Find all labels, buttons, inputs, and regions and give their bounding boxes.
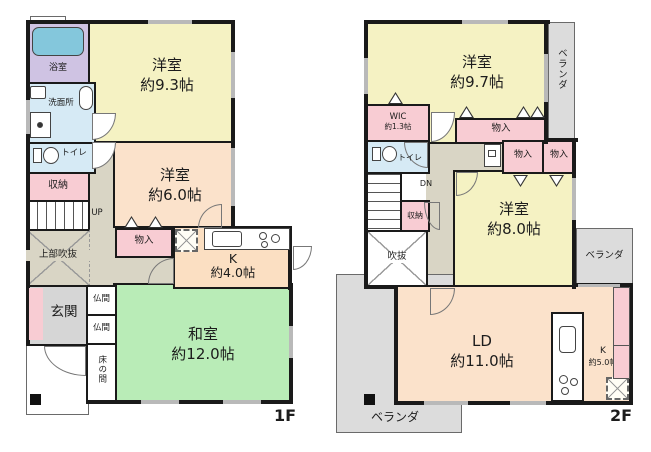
room-bath-label: 浴室 [30,63,86,73]
room-western-6-0-label: 洋室 約6.0帖 [116,166,234,205]
window [223,400,261,404]
room-toilet-1f-label: トイレ [54,149,94,159]
window [148,20,192,24]
wall-segment [394,285,398,405]
stove-burner-icon [259,232,267,240]
floorplan-image: 洋室 約9.3帖 洋室 約6.0帖 浴室 洗面所 トイレ 収納 UP [0,0,651,452]
window [364,58,368,94]
window [141,400,179,404]
stairs-down [366,172,402,232]
door-arc [293,246,312,270]
room-entrance-label: 玄関 [40,305,88,321]
bathtub-icon [32,27,84,56]
stove-burner-icon [271,234,280,243]
stairs-up-label: UP [86,209,108,219]
toilet-bowl-icon [43,147,59,164]
open-to-above-label: 上部吹抜 [26,250,90,261]
closet-1f-label: 物入 [117,236,171,247]
wall-segment [364,20,550,24]
hall-sink-basin [488,150,496,157]
room-toilet-2f-label: トイレ [392,153,428,162]
wall-segment [86,400,293,404]
wall-segment [364,285,397,289]
toilet-tank-icon [372,147,381,161]
stairs-down-label: DN [416,179,436,188]
floor-label-1f: 1F [274,406,296,425]
veranda-top-label: ベランダ [555,48,566,90]
kitchen-sink-icon [559,326,576,353]
refrigerator-space [606,377,629,400]
room-japanese-label: 和室 約12.0帖 [123,325,283,364]
window [289,326,293,358]
window [462,20,508,24]
room-storage-2f-label: 収納 [400,211,430,220]
stove-burner-icon [561,387,569,395]
stove-burner-icon [559,375,568,384]
window [510,401,546,405]
veranda-bottom-label: ベランダ [350,411,440,425]
wall-segment [26,20,235,24]
room-western-9-3-label: 洋室 約9.3帖 [102,56,232,95]
closet-a-label: 物入 [504,150,542,160]
toilet-bowl-icon [382,146,397,162]
room-wic-label: WIC 約1.3帖 [368,112,428,131]
room-altar-1-label: 仏間 [87,295,116,305]
refrigerator-space [175,229,198,252]
sink-icon [30,86,46,99]
porch-pillar [30,394,41,405]
room-western-8-0-label: 洋室 約8.0帖 [454,200,574,239]
room-altar-2-label: 仏間 [87,324,116,334]
washing-machine-drum [37,122,43,128]
vanity-icon [79,86,93,110]
stairs-up [26,200,90,231]
kitchen-counter-wall [613,287,630,379]
veranda-pillar [364,394,375,405]
stove-burner-icon [570,378,578,386]
void-atrium-label: 吹抜 [372,252,422,263]
window [424,401,468,405]
closet-97-label: 物入 [473,124,529,135]
room-living-dining-label: LD 約11.0帖 [402,332,562,371]
room-kitchen-1f-label: K 約4.0帖 [193,252,273,281]
room-alcove-label: 床の間 [96,355,106,384]
entrance-step [29,288,43,340]
stove-burner-icon [261,241,268,248]
veranda-mid-label: ベランダ [577,251,632,262]
room-western-9-7-label: 洋室 約9.7帖 [407,53,547,92]
toilet-tank-icon [33,148,42,163]
room-storage-1f-label: 収納 [28,180,88,192]
floor-label-2f: 2F [610,406,632,425]
kitchen-sink-icon [212,231,242,247]
kitchen-counter-divider [613,345,630,346]
closet-b-label: 物入 [543,150,575,160]
